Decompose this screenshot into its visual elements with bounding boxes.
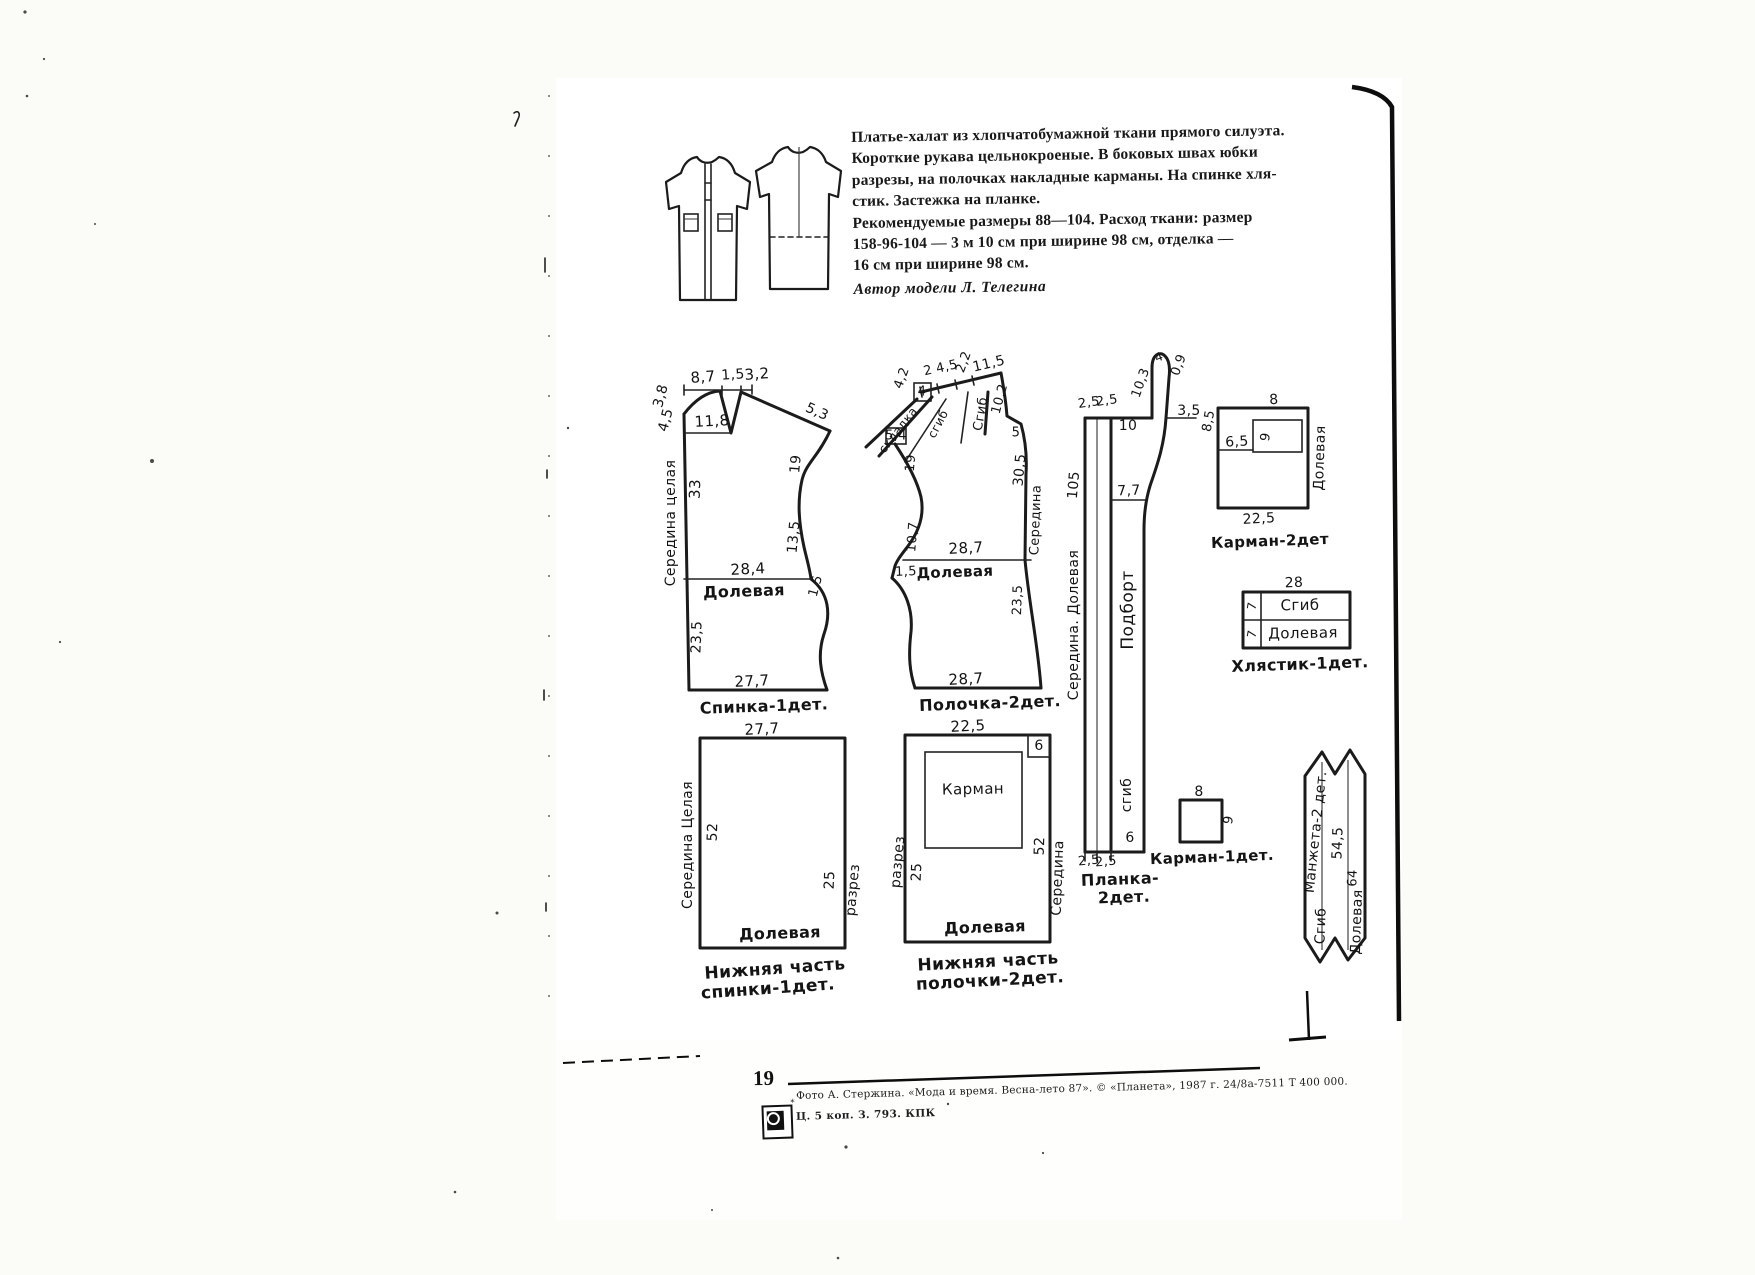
- logo-asterisk: *: [790, 1098, 795, 1108]
- piece-karman-1: [1180, 800, 1222, 842]
- piece-nizh-polochka: [905, 735, 1050, 942]
- dress-front-sketch: [666, 157, 750, 300]
- piece-manzheta: [1305, 750, 1365, 962]
- description-block: Платье-халат из хлопчатобумажной ткани п…: [851, 120, 1302, 300]
- piece-polochka: [866, 373, 1041, 688]
- page-number: 19: [753, 1066, 774, 1091]
- scanned-magazine-page: Платье-халат из хлопчатобумажной ткани п…: [0, 0, 1755, 1275]
- dress-back-sketch: [756, 147, 841, 289]
- piece-planka-podbort: [1085, 354, 1196, 861]
- piece-nizh-spinka: [700, 738, 845, 948]
- piece-spinka: [684, 385, 830, 690]
- camera-logo-icon: *: [761, 1104, 793, 1139]
- piece-karman-2: [1218, 408, 1308, 508]
- piece-khlyastik: [1243, 592, 1350, 648]
